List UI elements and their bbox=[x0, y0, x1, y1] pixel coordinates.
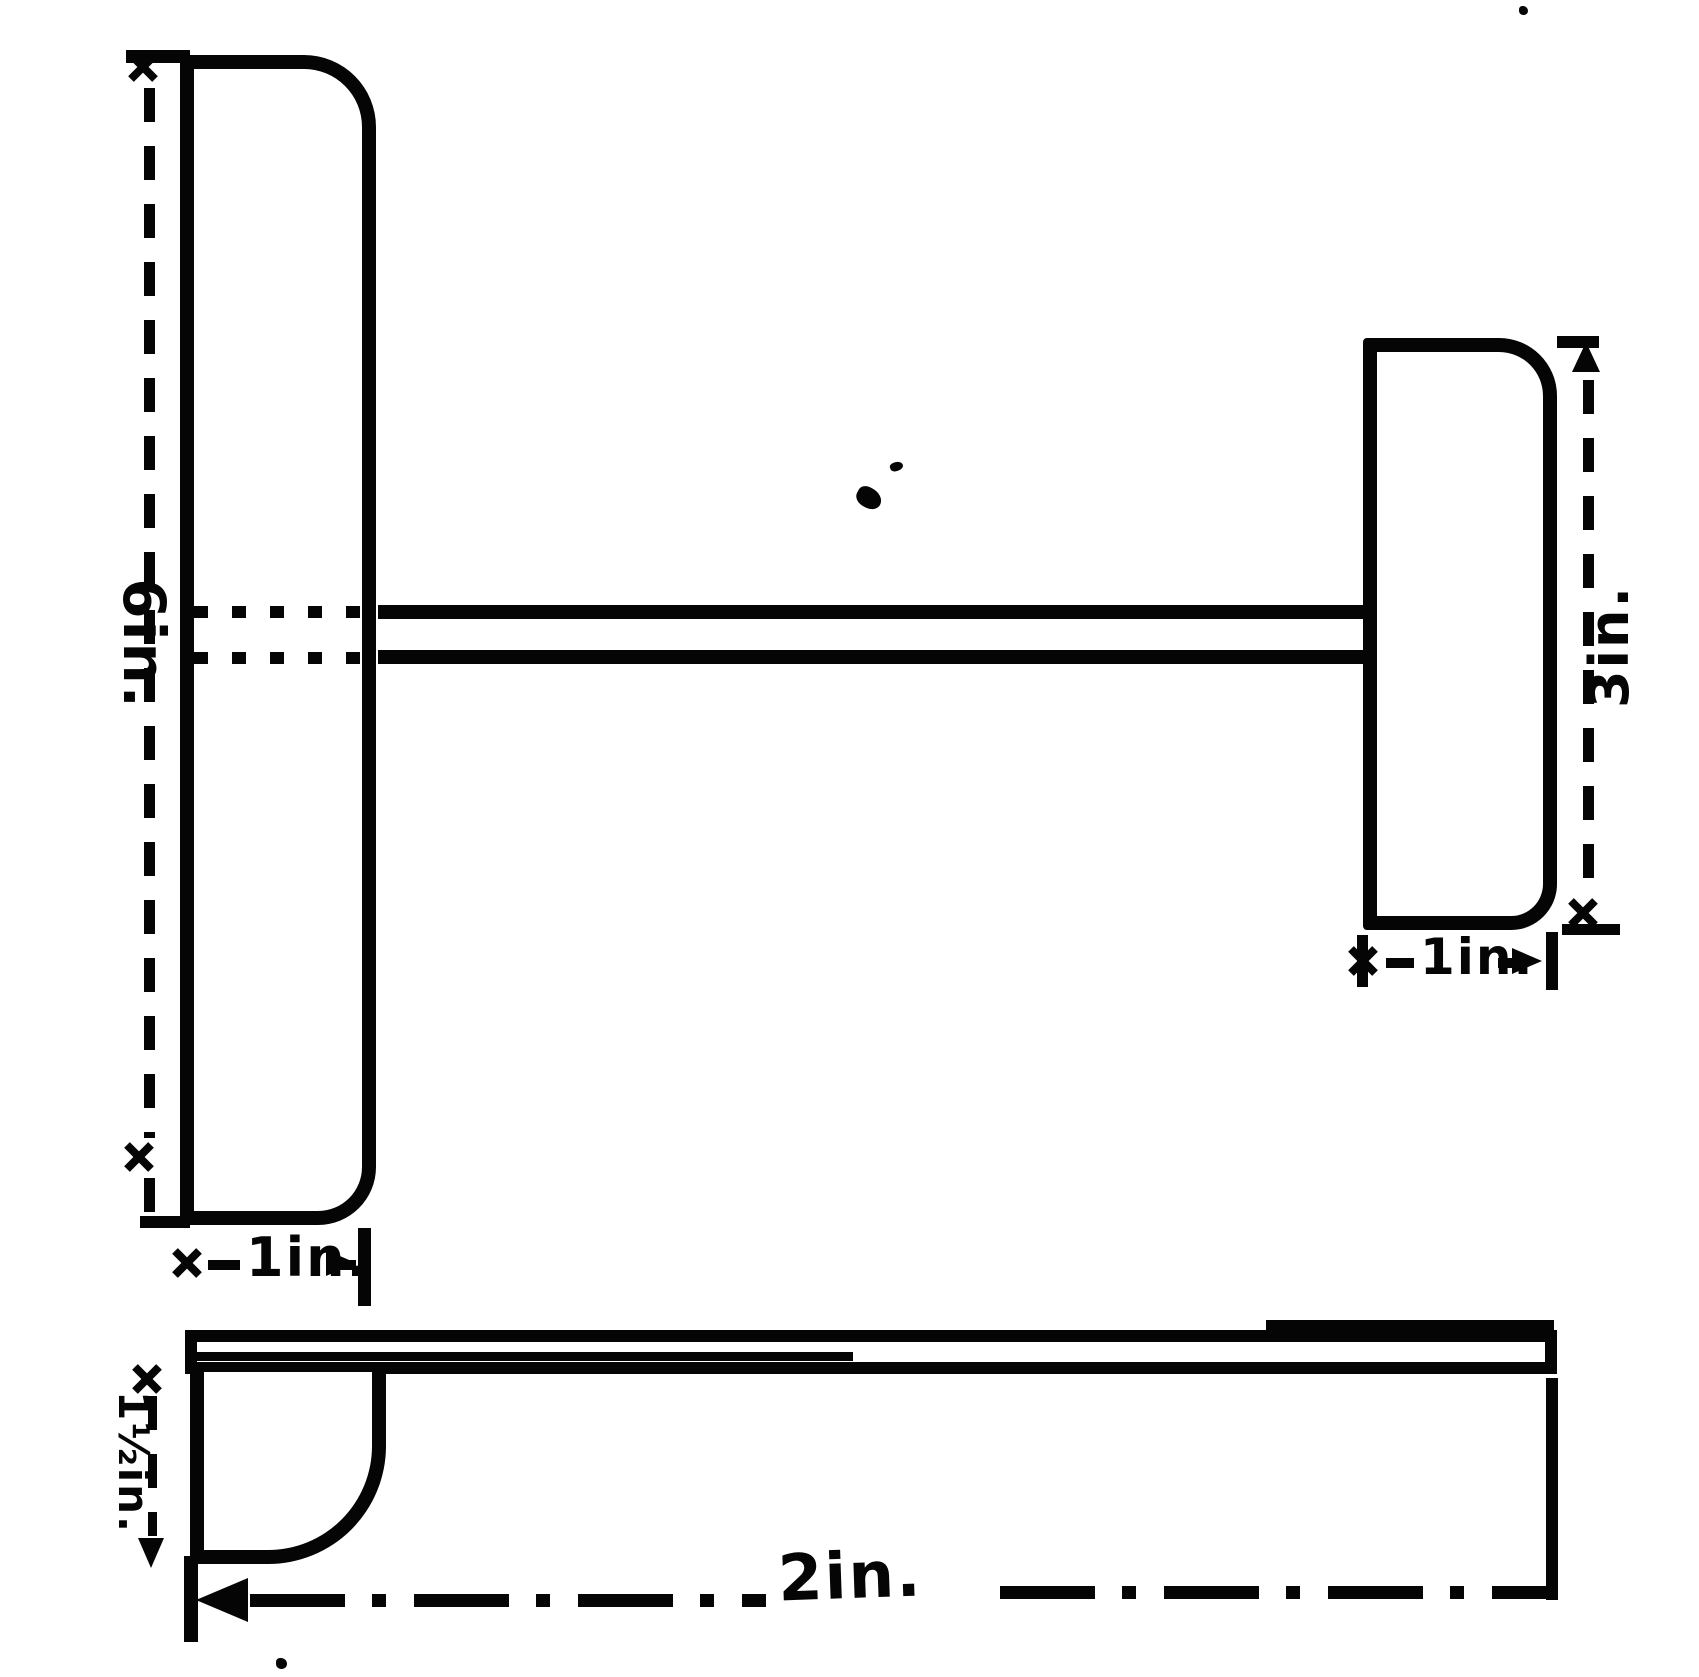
dim-line-length-right bbox=[1000, 1586, 1552, 1599]
extension-line bbox=[140, 1216, 190, 1228]
dim-dash bbox=[1386, 958, 1414, 968]
scanned-technical-drawing: 6in. 1in. 3in. 1in. bbox=[0, 0, 1699, 1677]
ink-speck bbox=[276, 1658, 287, 1669]
dim-label-length: 2in. bbox=[777, 1538, 924, 1617]
ink-speck bbox=[1519, 6, 1528, 15]
dim-label-thickness: 1½in. bbox=[109, 1391, 158, 1534]
dimension-arrowhead-icon bbox=[326, 1250, 356, 1276]
inner-edge-line bbox=[197, 1352, 853, 1361]
hidden-line bbox=[194, 606, 376, 618]
dim-label-3in: 3in. bbox=[1578, 585, 1641, 708]
ink-speck bbox=[853, 483, 885, 513]
dimension-xmark-icon bbox=[172, 1248, 202, 1278]
dim-dash bbox=[208, 1260, 240, 1270]
left-blade-edge-outline bbox=[190, 1372, 386, 1564]
dimension-arrowhead-icon bbox=[1512, 948, 1542, 974]
dim-line-length-left bbox=[250, 1594, 766, 1607]
dimension-xmark-icon bbox=[132, 1364, 162, 1394]
dim-label-6in: 6in. bbox=[110, 578, 178, 710]
hidden-line bbox=[194, 652, 376, 664]
dimension-xmark-icon bbox=[124, 1142, 154, 1172]
right-blade-edge-line bbox=[1266, 1320, 1554, 1331]
shaft-top-line bbox=[378, 605, 1366, 619]
extension-line bbox=[1562, 924, 1620, 935]
left-blade-outline bbox=[180, 55, 376, 1225]
shaft-bottom-line bbox=[378, 650, 1366, 664]
ink-speck bbox=[889, 460, 904, 473]
dimension-arrowhead-icon bbox=[138, 1538, 164, 1568]
dimension-arrowhead-icon bbox=[196, 1578, 248, 1622]
dimension-xmark-icon bbox=[128, 52, 158, 82]
extension-line bbox=[358, 1228, 371, 1306]
dimension-xmark-icon bbox=[1348, 946, 1378, 976]
dimension-arrowhead-icon bbox=[1572, 342, 1600, 372]
extension-line bbox=[1546, 932, 1558, 990]
right-blade-outline bbox=[1363, 338, 1557, 930]
dim-line-6in-tail bbox=[144, 1178, 155, 1218]
extension-line bbox=[1546, 1378, 1558, 1600]
